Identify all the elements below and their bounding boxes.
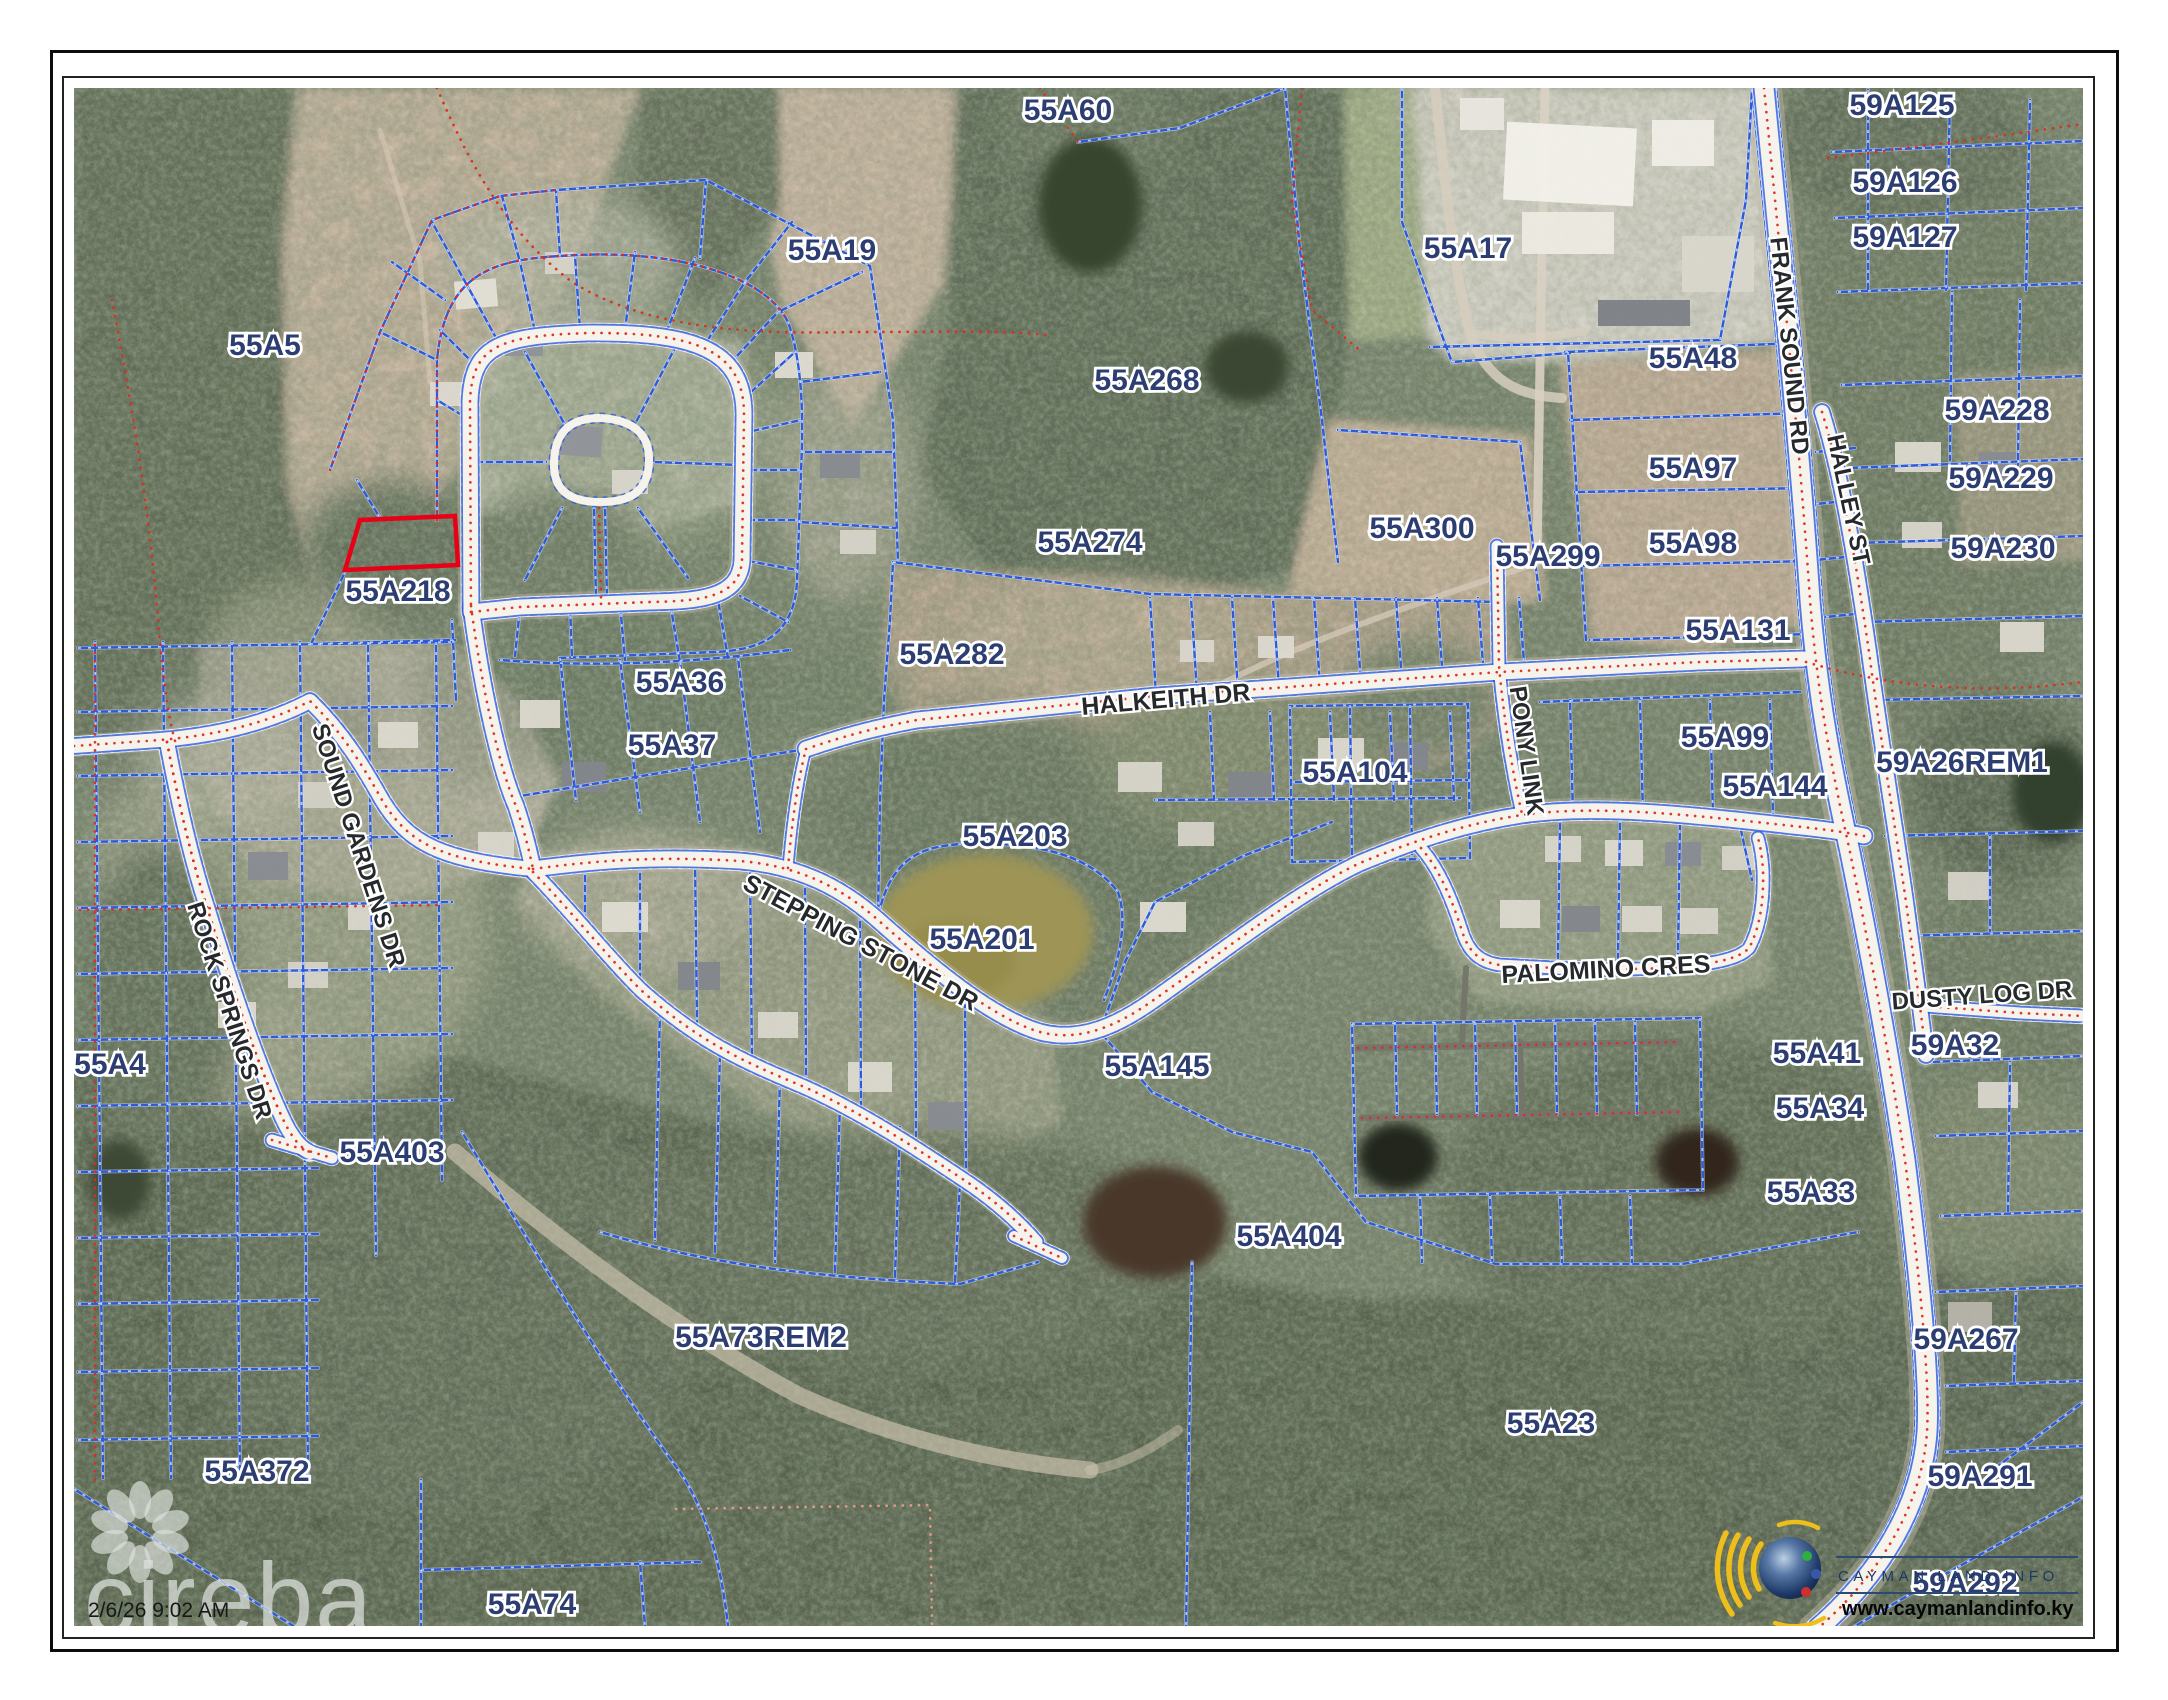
svg-text:55A131: 55A131 xyxy=(1685,614,1790,647)
svg-text:55A4: 55A4 xyxy=(74,1048,146,1081)
svg-text:55A282: 55A282 xyxy=(899,638,1004,671)
svg-text:55A48: 55A48 xyxy=(1649,342,1737,375)
svg-text:55A98: 55A98 xyxy=(1649,527,1737,560)
svg-text:55A403: 55A403 xyxy=(339,1136,444,1169)
svg-text:55A17: 55A17 xyxy=(1424,232,1512,265)
svg-text:55A404: 55A404 xyxy=(1236,1220,1341,1253)
svg-text:55A144: 55A144 xyxy=(1722,770,1827,803)
svg-text:59A267: 59A267 xyxy=(1913,1323,2018,1356)
svg-text:55A41: 55A41 xyxy=(1773,1037,1861,1070)
svg-text:55A218: 55A218 xyxy=(345,575,450,608)
svg-text:55A299: 55A299 xyxy=(1495,540,1600,573)
svg-text:55A19: 55A19 xyxy=(788,234,876,267)
svg-text:59A126: 59A126 xyxy=(1852,166,1957,199)
svg-text:55A104: 55A104 xyxy=(1302,756,1407,789)
svg-text:55A268: 55A268 xyxy=(1094,364,1199,397)
svg-text:55A60: 55A60 xyxy=(1024,94,1112,127)
svg-text:55A23: 55A23 xyxy=(1507,1407,1595,1440)
svg-text:55A145: 55A145 xyxy=(1104,1050,1209,1083)
svg-text:59A32: 59A32 xyxy=(1911,1029,1999,1062)
svg-text:55A73REM2: 55A73REM2 xyxy=(675,1321,847,1354)
svg-text:59A291: 59A291 xyxy=(1927,1460,2032,1493)
svg-text:59A127: 59A127 xyxy=(1852,221,1957,254)
svg-text:55A201: 55A201 xyxy=(929,923,1034,956)
svg-text:59A26REM1: 59A26REM1 xyxy=(1876,746,2048,779)
svg-text:59A230: 59A230 xyxy=(1950,532,2055,565)
svg-text:www.caymanlandinfo.ky: www.caymanlandinfo.ky xyxy=(1841,1598,2074,1620)
svg-text:55A97: 55A97 xyxy=(1649,452,1737,485)
svg-text:55A99: 55A99 xyxy=(1681,721,1769,754)
svg-text:55A274: 55A274 xyxy=(1037,526,1142,559)
svg-text:55A33: 55A33 xyxy=(1767,1176,1855,1209)
svg-text:59A125: 59A125 xyxy=(1849,89,1954,122)
svg-text:55A37: 55A37 xyxy=(628,729,716,762)
svg-text:55A5: 55A5 xyxy=(229,329,301,362)
svg-text:55A34: 55A34 xyxy=(1776,1092,1865,1125)
svg-text:59A228: 59A228 xyxy=(1944,394,2049,427)
svg-text:CAYMAN LAND INFO: CAYMAN LAND INFO xyxy=(1838,1568,2059,1585)
svg-text:55A203: 55A203 xyxy=(962,820,1067,853)
svg-text:55A74: 55A74 xyxy=(488,1588,577,1621)
svg-text:55A36: 55A36 xyxy=(636,666,724,699)
svg-text:59A229: 59A229 xyxy=(1948,462,2053,495)
svg-text:55A372: 55A372 xyxy=(204,1455,309,1488)
svg-text:2/6/26 9:02 AM: 2/6/26 9:02 AM xyxy=(88,1599,229,1622)
svg-text:55A300: 55A300 xyxy=(1369,512,1474,545)
